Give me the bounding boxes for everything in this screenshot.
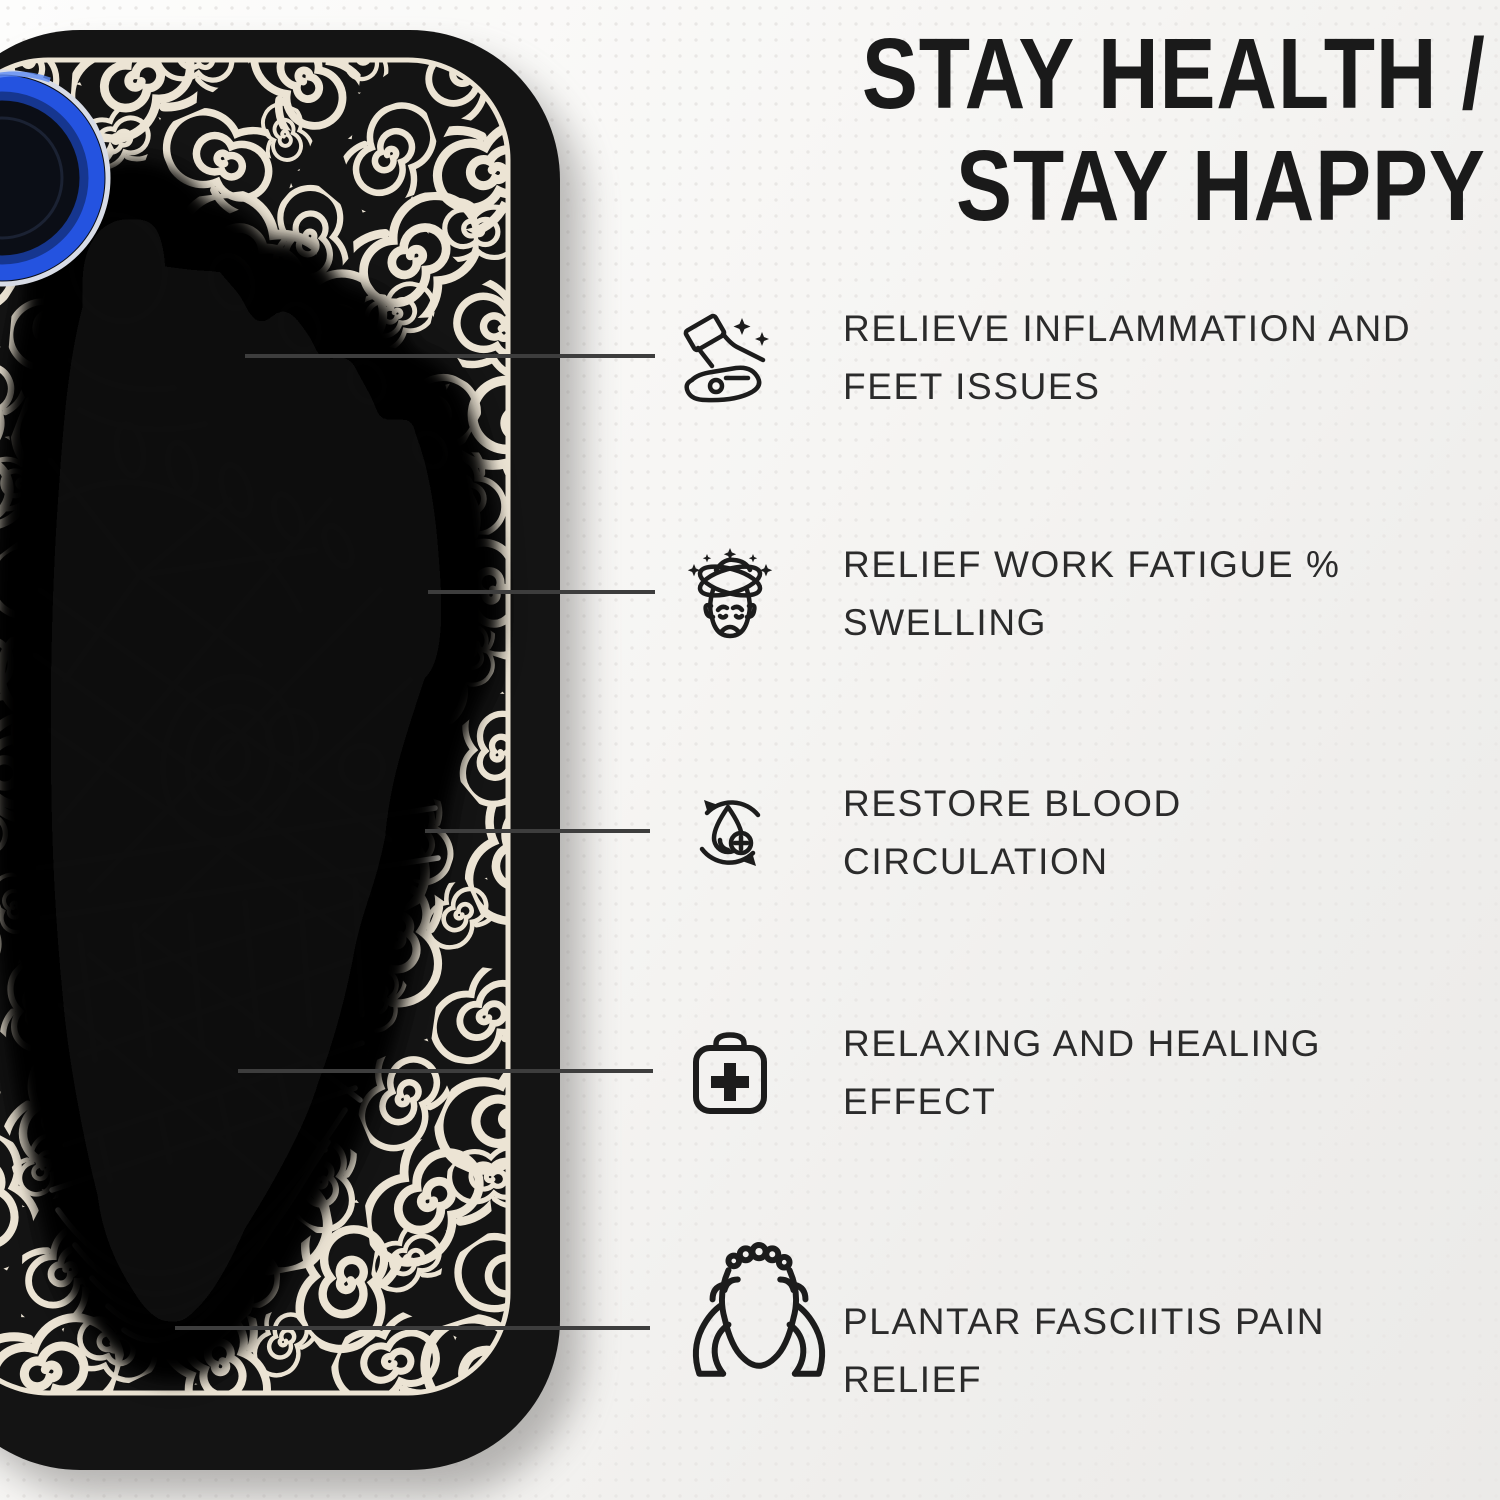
product-mat-photo bbox=[0, 30, 560, 1470]
feature-label-line2: RELIEF bbox=[843, 1351, 1325, 1409]
callout-line-4 bbox=[238, 1069, 653, 1073]
feature-label-line1: RELIEF WORK FATIGUE % bbox=[843, 536, 1341, 594]
feature-item-blood-circulation: RESTORE BLOOD CIRCULATION bbox=[680, 758, 1460, 908]
feature-label-line2: SWELLING bbox=[843, 594, 1341, 652]
feature-label-line1: RESTORE BLOOD bbox=[843, 775, 1182, 833]
product-infographic: STAY HEALTH / STAY HAPPY RELIEVE INFLAMM… bbox=[0, 0, 1500, 1500]
title-line-1: STAY HEALTH / bbox=[862, 18, 1486, 130]
callout-line-1 bbox=[245, 354, 655, 358]
feature-item-plantar-relief: PLANTAR FASCIITIS PAIN RELIEF bbox=[680, 1255, 1460, 1405]
dizzy-face-icon bbox=[680, 544, 780, 644]
feature-label-line1: RELAXING AND HEALING bbox=[843, 1015, 1321, 1073]
blood-circulation-icon bbox=[680, 783, 780, 883]
feature-label-line2: CIRCULATION bbox=[843, 833, 1182, 891]
callout-line-3 bbox=[425, 829, 650, 833]
callout-line-5 bbox=[175, 1326, 650, 1330]
feature-item-healing-effect: RELAXING AND HEALING EFFECT bbox=[680, 998, 1460, 1148]
mat-graphic bbox=[0, 30, 560, 1470]
title-line-2: STAY HAPPY bbox=[862, 130, 1486, 242]
first-aid-kit-icon bbox=[680, 1023, 780, 1123]
feature-label-line1: RELIEVE INFLAMMATION AND bbox=[843, 300, 1411, 358]
foot-on-hand-sparkle-icon bbox=[680, 308, 780, 408]
callout-line-2 bbox=[428, 590, 655, 594]
foot-massage-hands-icon bbox=[686, 1241, 832, 1387]
feature-item-relieve-inflammation: RELIEVE INFLAMMATION AND FEET ISSUES bbox=[680, 283, 1460, 433]
feature-label-line1: PLANTAR FASCIITIS PAIN bbox=[843, 1293, 1325, 1351]
feature-label-line2: FEET ISSUES bbox=[843, 358, 1411, 416]
page-title: STAY HEALTH / STAY HAPPY bbox=[862, 18, 1486, 242]
feature-item-fatigue-swelling: RELIEF WORK FATIGUE % SWELLING bbox=[680, 519, 1460, 669]
feature-label-line2: EFFECT bbox=[843, 1073, 1321, 1131]
